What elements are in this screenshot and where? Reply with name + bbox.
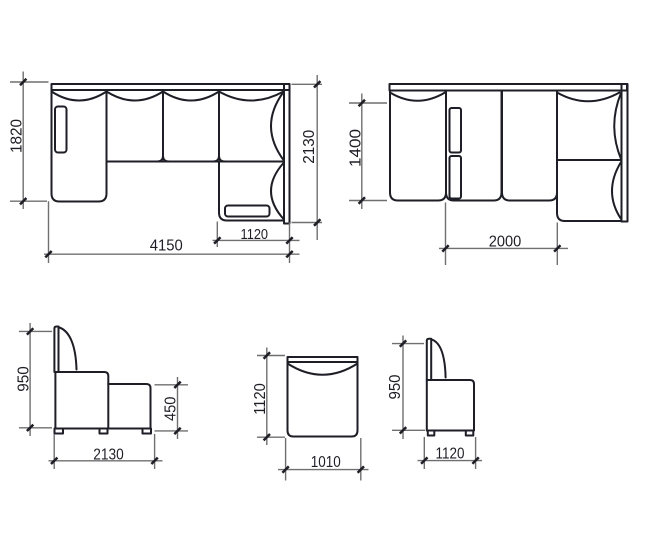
svg-text:1010: 1010 [311, 454, 341, 471]
svg-text:1120: 1120 [252, 383, 269, 415]
svg-text:450: 450 [163, 396, 180, 421]
svg-text:950: 950 [16, 366, 33, 392]
svg-text:2130: 2130 [93, 446, 124, 463]
svg-text:4150: 4150 [150, 238, 183, 255]
svg-text:1820: 1820 [8, 119, 25, 153]
svg-text:2000: 2000 [489, 234, 522, 251]
svg-text:1120: 1120 [241, 227, 269, 243]
svg-text:1120: 1120 [436, 445, 465, 462]
svg-text:2130: 2130 [301, 129, 318, 163]
svg-text:1400: 1400 [347, 129, 364, 167]
svg-text:950: 950 [387, 374, 404, 399]
